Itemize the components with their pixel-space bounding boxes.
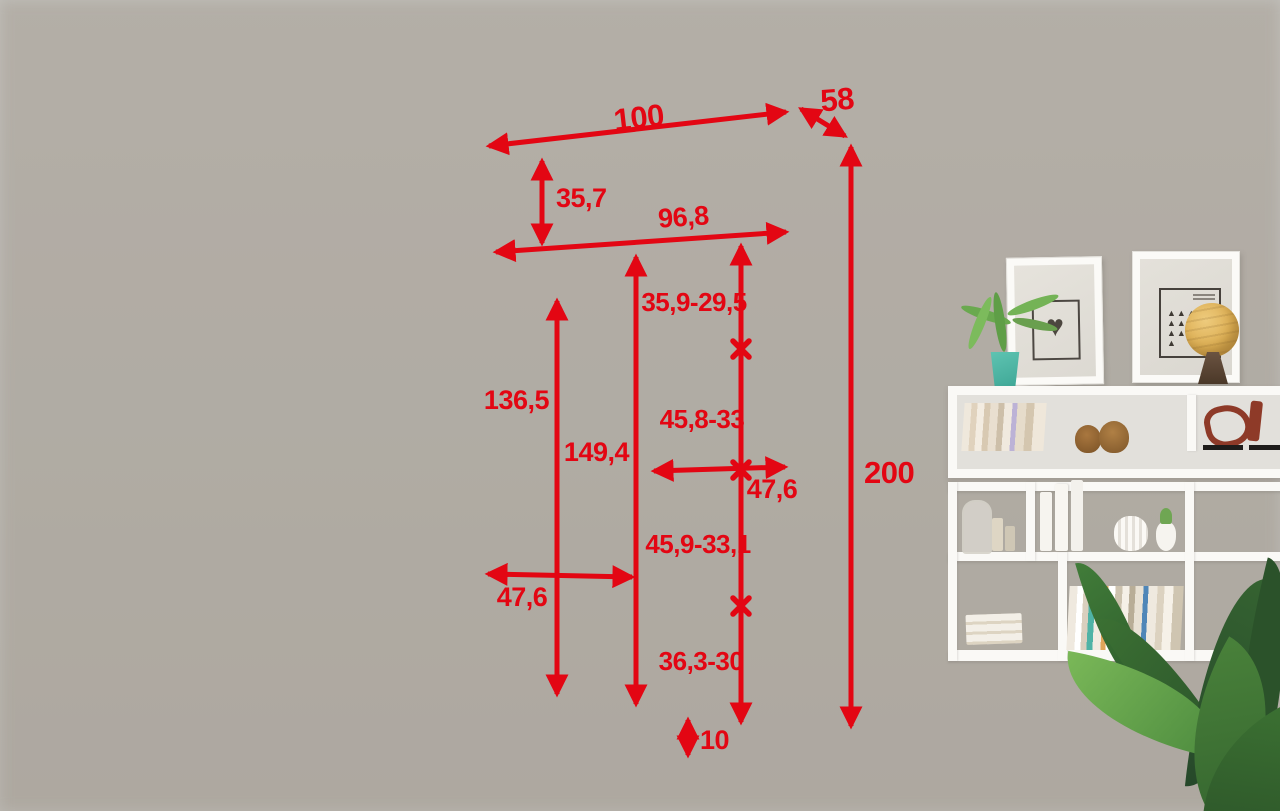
dim-line-right-col-width bbox=[654, 467, 785, 471]
dim-line-left-width bbox=[488, 574, 632, 577]
dim-label-top-shelf-gap: 35,7 bbox=[556, 183, 607, 213]
dim-label-inner-width: 96,8 bbox=[657, 200, 710, 233]
dim-label-right-col-width: 47,6 bbox=[747, 474, 798, 504]
dim-label-interior-height: 149,4 bbox=[564, 437, 630, 467]
dim-label-hanging-height: 136,5 bbox=[484, 385, 550, 415]
dim-label-left-width: 47,6 bbox=[497, 582, 548, 612]
dim-label-right-col-gap2: 45,8-33 bbox=[660, 404, 745, 434]
dimension-overlay: 100 58 200 35,7 96,8 35,9-29,5 45,8-33 4… bbox=[0, 0, 1280, 811]
dim-label-right-col-gap3: 45,9-33,1 bbox=[645, 529, 750, 559]
dim-label-right-col-gap4: 36,3-30 bbox=[659, 646, 744, 676]
dim-label-total-height: 200 bbox=[864, 455, 914, 490]
dim-label-depth: 58 bbox=[819, 81, 856, 119]
dim-label-top-width: 100 bbox=[612, 97, 666, 137]
dim-label-plinth: 10 bbox=[700, 725, 729, 755]
room-scene: ♥ ▲▲▲▲▲▲▲▲▲▲▲▲▲ bbox=[0, 0, 1280, 811]
dim-label-right-col-gap1: 35,9-29,5 bbox=[641, 287, 746, 317]
